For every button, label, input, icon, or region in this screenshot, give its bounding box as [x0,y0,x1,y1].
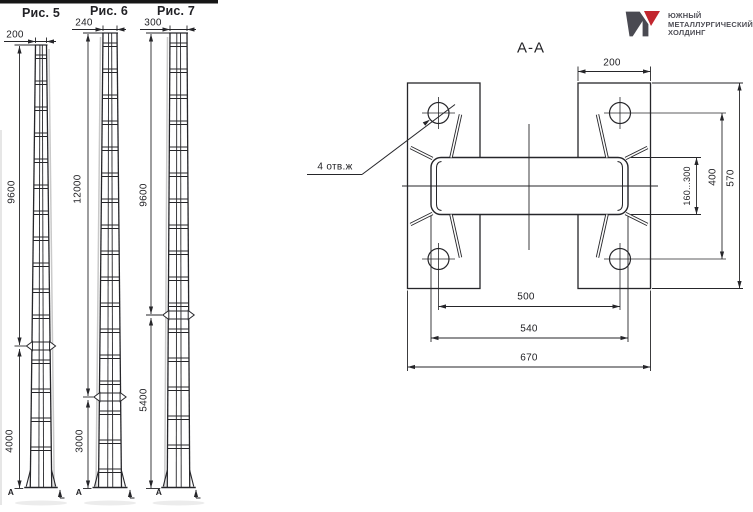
dim-arrow [613,304,621,308]
pole1-upper-length-dim: 9600 [7,180,18,203]
hole-span-h-dim: 500 [517,292,535,303]
holes-leader-note: 4 отв.ж [317,162,352,173]
pole2-upper-length-dim: 12000 [73,174,84,203]
hole-span-v-dim: 400 [708,168,719,186]
scan-smudge [15,501,67,506]
pole3-section-letter: А [156,487,162,497]
dim-arrow [96,27,104,31]
pole1-section-letter: А [8,487,14,497]
gusset-rib-core [451,215,461,258]
dim-arrow [17,349,21,357]
gusset-rib-core [626,214,648,225]
figure-6-title: Рис. 6 [90,4,128,18]
dim-arrow [117,27,125,31]
dim-arrow [28,39,36,43]
drawing-canvas: Рис. 5 Рис. 6 Рис. 7 200 240 300 9600 40… [0,0,753,512]
dim-arrow [17,46,21,54]
dim-arrow [720,113,724,121]
dim-arrow [86,389,90,397]
dim-arrow [149,34,153,42]
figure-7-title: Рис. 7 [157,4,195,18]
section-cut-arrowhead [194,490,198,498]
dim-arrow [47,39,55,43]
dim-arrow [149,307,153,315]
scan-top-bar [0,0,218,4]
tube-length-dim: 540 [520,324,538,335]
pole3-upper-length-dim: 9600 [139,183,150,206]
dim-arrow [187,27,195,31]
dim-arrow [86,400,90,408]
pole-ladder-rail [108,33,109,488]
dim-arrow [694,158,698,166]
technical-drawing [0,0,753,512]
scan-artifact [96,37,101,488]
pole3-top-width-dim: 300 [144,18,162,29]
gusset-rib-core [411,214,433,225]
plate-width-dim: 200 [603,58,621,69]
gusset-rib-core [411,148,433,159]
gusset-rib-core [598,215,608,258]
logo-m-dark-part [625,11,649,37]
dim-arrow [86,481,90,489]
dim-arrow [720,252,724,260]
pole2-section-letter: А [76,487,82,497]
dim-arrow [643,69,651,73]
pole-ladder-rail [112,33,113,488]
scan-smudge [84,501,136,506]
pole2-top-width-dim: 240 [75,18,93,29]
dim-arrow [578,69,586,73]
gusset-rib-core [451,115,461,158]
dim-arrow [439,304,447,308]
pole1-lower-length-dim: 4000 [5,429,16,452]
dim-arrow [737,281,741,289]
dim-arrow [621,336,629,340]
gusset-rib-core [598,115,608,158]
dim-arrow [643,365,651,369]
section-cut-arrowhead [58,490,62,498]
dim-arrow [431,336,439,340]
gusset-rib-core [626,148,648,159]
figure-5-title: Рис. 5 [22,6,60,20]
dim-arrow [17,338,21,346]
overall-height-dim: 570 [726,169,737,187]
scan-smudge [153,501,205,506]
dim-arrow [17,481,21,489]
pole1-top-width-dim: 200 [6,30,24,41]
dim-arrow [694,207,698,215]
dim-arrow [408,365,416,369]
dim-arrow [737,83,741,91]
logo-m-icon [624,11,662,39]
section-cut-arrowhead [128,490,132,498]
joint-flange-right [120,393,126,402]
overall-width-dim: 670 [520,353,538,364]
pole2-lower-length-dim: 3000 [75,429,86,452]
dim-arrow [149,481,153,489]
dim-arrow [86,34,90,42]
joint-flange-left [26,342,32,351]
tube-height-dim: 160...300 [682,166,692,205]
pole-right-chord [117,33,122,488]
dim-arrow [163,27,171,31]
logo-company-name: ЮЖНЫЙ МЕТАЛЛУРГИЧЕСКИЙ ХОЛДИНГ [668,12,753,38]
pole3-lower-length-dim: 5400 [139,388,150,411]
joint-flange-right [188,311,194,320]
section-title: А-А [517,40,545,57]
logo-line-3: ХОЛДИНГ [668,29,753,38]
dim-arrow [149,318,153,326]
